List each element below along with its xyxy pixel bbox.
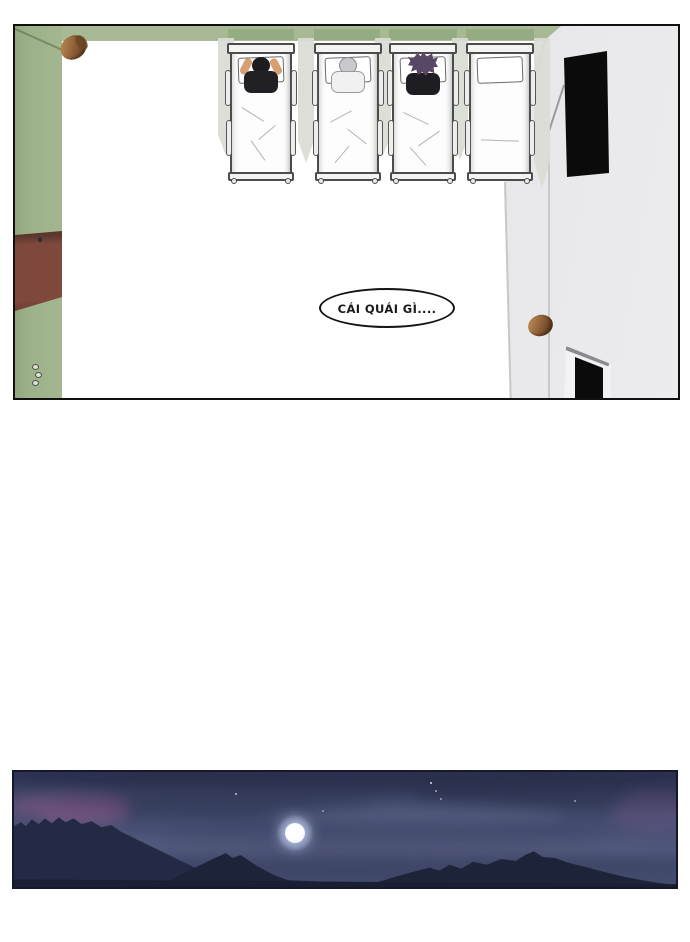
speech-bubble: CÁI QUÁI GÌ....: [319, 288, 455, 328]
wall-seam-line: [548, 154, 550, 400]
bed-3: [392, 44, 454, 180]
door-knob: [38, 237, 42, 242]
sleeper-black-hair: [230, 44, 292, 104]
bed-rail: [465, 120, 471, 156]
bed-rail: [464, 70, 470, 106]
wall-shadow: [389, 29, 457, 40]
night-sky-panel: [12, 770, 678, 889]
bed-1: [230, 44, 292, 180]
room-panel: CÁI QUÁI GÌ....: [13, 24, 680, 400]
bed-2: [317, 44, 379, 180]
blanket-body: [331, 71, 365, 93]
bed-rail: [530, 70, 536, 106]
bed-pillow: [477, 56, 524, 84]
bed-4-empty: [469, 44, 531, 180]
mountain-range-right: [360, 851, 676, 887]
bed-shadow: [534, 38, 550, 188]
wall-hook: [32, 380, 39, 386]
wall-shadow: [228, 29, 294, 40]
bed-caster: [470, 178, 476, 184]
bed-caster: [372, 178, 378, 184]
sleeper-purple-spiky-hair: [392, 44, 454, 104]
bed-caster: [447, 178, 453, 184]
bed-rail: [377, 120, 383, 156]
wall-shadow: [314, 29, 380, 40]
wall-hook: [32, 364, 39, 370]
blanket-body: [244, 71, 278, 93]
sleeper-gray-hair: [317, 44, 379, 104]
bed-rail: [226, 120, 232, 156]
door: [15, 231, 62, 311]
bed-caster: [231, 178, 237, 184]
bed-rail: [529, 120, 535, 156]
wall-shadow: [466, 29, 534, 40]
bed-caster: [318, 178, 324, 184]
bed-caster: [285, 178, 291, 184]
bed-rail: [313, 120, 319, 156]
bed-rail: [452, 120, 458, 156]
webtoon-page: { "page": {"background": "#ffffff", "kin…: [0, 0, 690, 942]
blanket-body: [406, 73, 440, 95]
bed-rail: [290, 120, 296, 156]
left-wall: [15, 26, 62, 398]
bed-headboard: [466, 43, 534, 54]
wall-hook: [35, 372, 42, 378]
bed-caster: [524, 178, 530, 184]
speech-text: CÁI QUÁI GÌ....: [338, 301, 437, 316]
mountains: [14, 772, 676, 887]
bed-rail: [388, 120, 394, 156]
bed-caster: [393, 178, 399, 184]
